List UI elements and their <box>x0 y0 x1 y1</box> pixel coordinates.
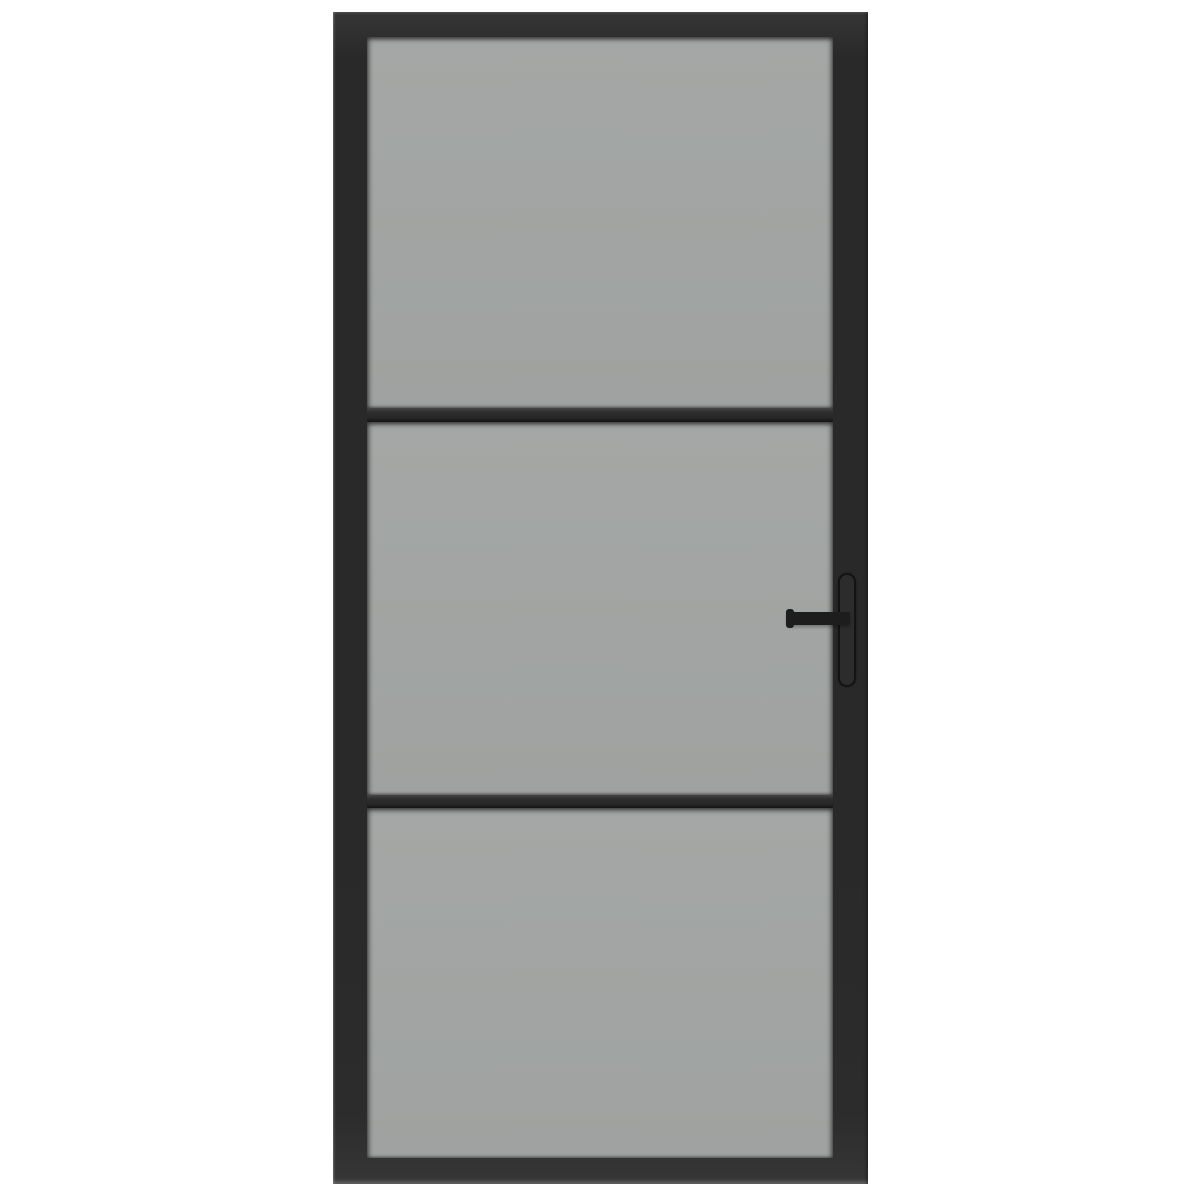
door-glass-panel-middle <box>367 422 833 795</box>
door-glass-panel-top <box>367 37 833 408</box>
door-muntin-bar-upper <box>367 408 833 422</box>
door-handle-backplate <box>838 573 856 687</box>
door-handle-lever <box>787 612 850 625</box>
glass-door <box>333 12 868 1184</box>
door-glass-panel-bottom <box>367 808 833 1158</box>
product-photo-canvas <box>0 0 1200 1200</box>
door-muntin-bar-lower <box>367 795 833 808</box>
